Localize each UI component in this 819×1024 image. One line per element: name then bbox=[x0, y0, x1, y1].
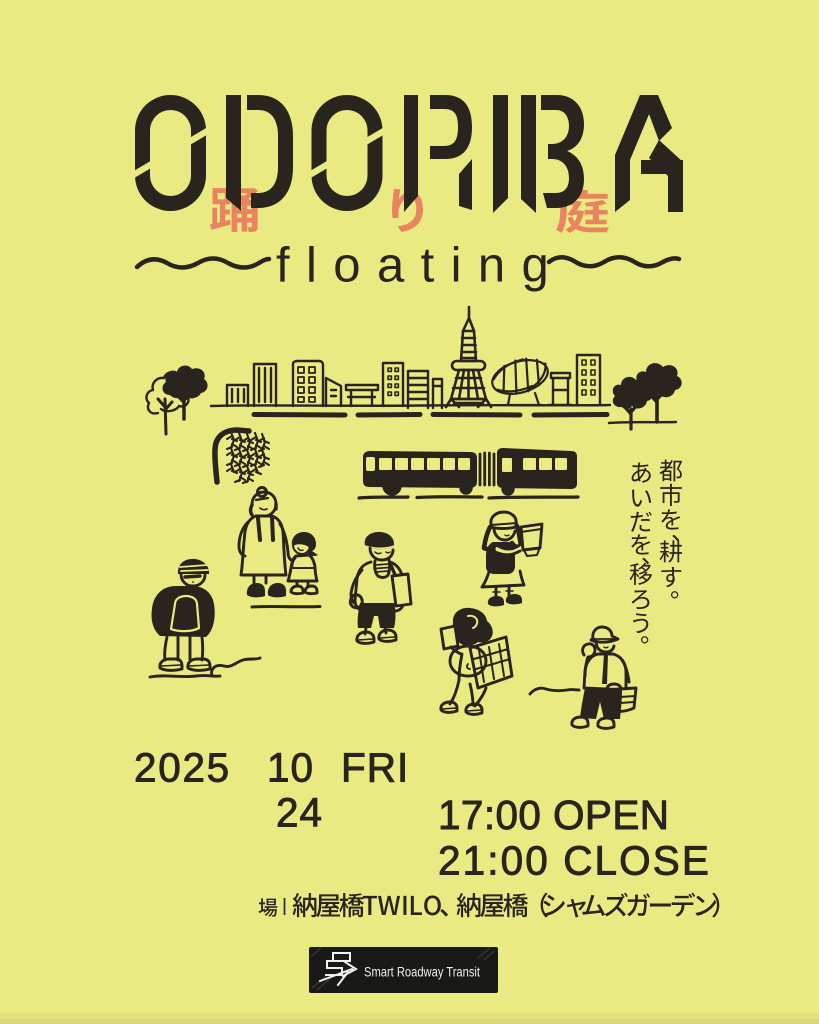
svg-text:17:00 OPEN: 17:00 OPEN bbox=[438, 792, 669, 838]
svg-text:floating: floating bbox=[276, 239, 565, 293]
svg-text:FRI: FRI bbox=[341, 745, 409, 791]
svg-text:24: 24 bbox=[276, 790, 323, 836]
svg-text:21:00 CLOSE: 21:00 CLOSE bbox=[438, 838, 711, 884]
svg-text:10: 10 bbox=[267, 745, 314, 791]
svg-text:Smart Roadway Transit: Smart Roadway Transit bbox=[364, 965, 480, 980]
svg-text:2025: 2025 bbox=[134, 745, 231, 791]
